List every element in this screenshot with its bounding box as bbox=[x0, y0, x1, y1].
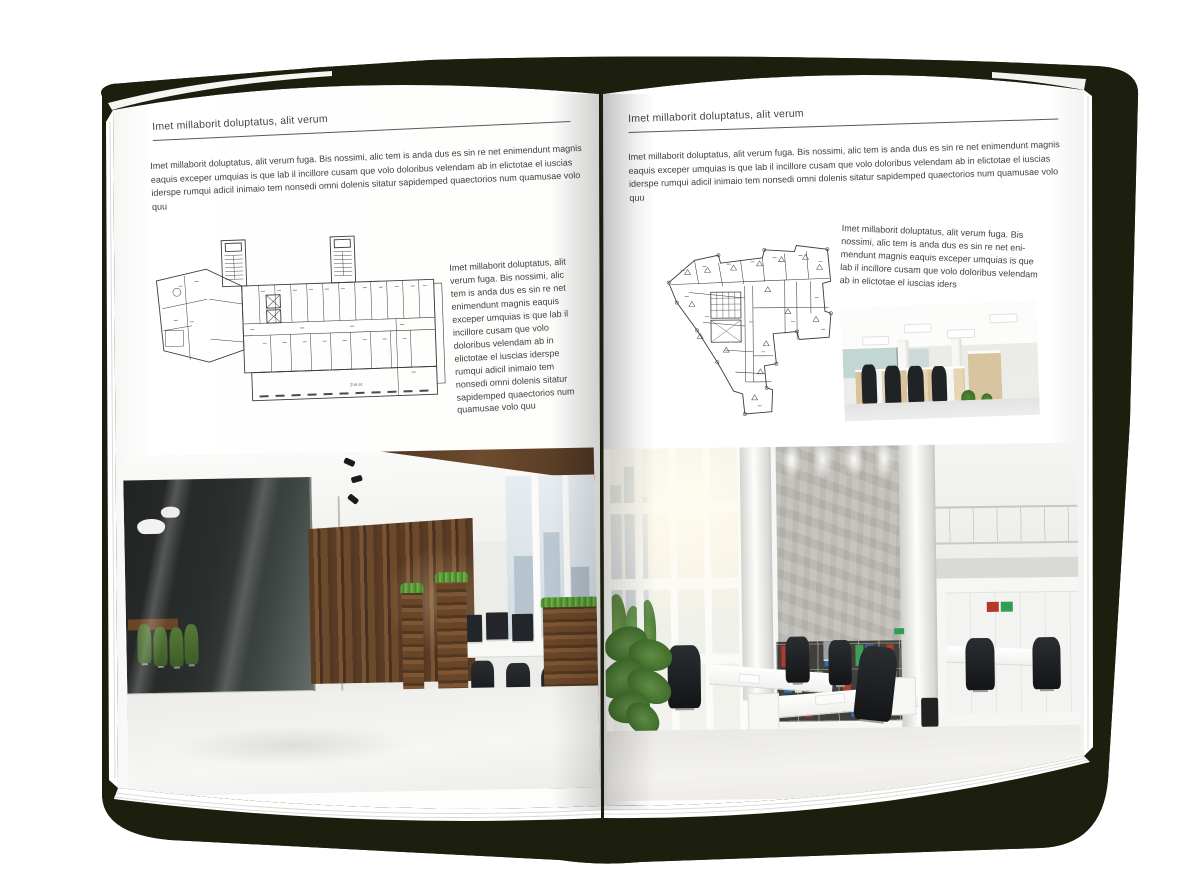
floor bbox=[606, 724, 1081, 801]
waste-bin bbox=[921, 698, 938, 726]
glass-reflection bbox=[123, 477, 314, 725]
downlight-glow bbox=[811, 443, 834, 482]
ceiling-light bbox=[990, 314, 1018, 324]
photo-loft-office bbox=[123, 448, 600, 797]
downlight-glow bbox=[873, 443, 896, 481]
floor-plan-left-label: 2-й эт. bbox=[350, 381, 363, 387]
right-page-side-paragraph: Imet millaborit doluptatus, alit verum f… bbox=[840, 222, 1040, 294]
first-aid-sign bbox=[1001, 602, 1013, 612]
downlight-glow bbox=[842, 443, 865, 481]
office-chair bbox=[965, 637, 994, 690]
fire-safety-sign bbox=[986, 602, 998, 612]
ceiling-light bbox=[947, 329, 975, 339]
office-chair bbox=[1032, 637, 1061, 690]
monitor bbox=[512, 614, 534, 644]
office-chair bbox=[884, 365, 901, 406]
photo-atrium-office bbox=[603, 443, 1082, 802]
office-chair bbox=[785, 637, 809, 683]
floor-shadow bbox=[175, 723, 411, 768]
downlight-glow bbox=[780, 443, 803, 482]
book-mockup-canvas: Imet millaborit doluptatus, alit verum I… bbox=[0, 0, 1200, 891]
photo-open-space-small bbox=[841, 302, 1040, 422]
exit-sign bbox=[894, 628, 904, 634]
monitor bbox=[486, 612, 508, 642]
ceiling-light bbox=[862, 336, 890, 346]
column bbox=[740, 447, 774, 701]
office-chair bbox=[861, 364, 878, 405]
office-chair bbox=[907, 365, 924, 404]
office-chair bbox=[828, 639, 852, 685]
floor-plan-left: 2-й эт. bbox=[147, 221, 454, 423]
office-chair bbox=[931, 366, 948, 403]
floor-plan-right bbox=[644, 221, 841, 419]
concrete-wall bbox=[776, 445, 902, 642]
ceiling-light bbox=[904, 323, 932, 333]
meeting-room-glass-wall bbox=[123, 477, 316, 725]
left-page-side-paragraph: Imet millaborit doluptatus, alit verum f… bbox=[449, 255, 585, 417]
paper-sheet bbox=[738, 673, 760, 684]
